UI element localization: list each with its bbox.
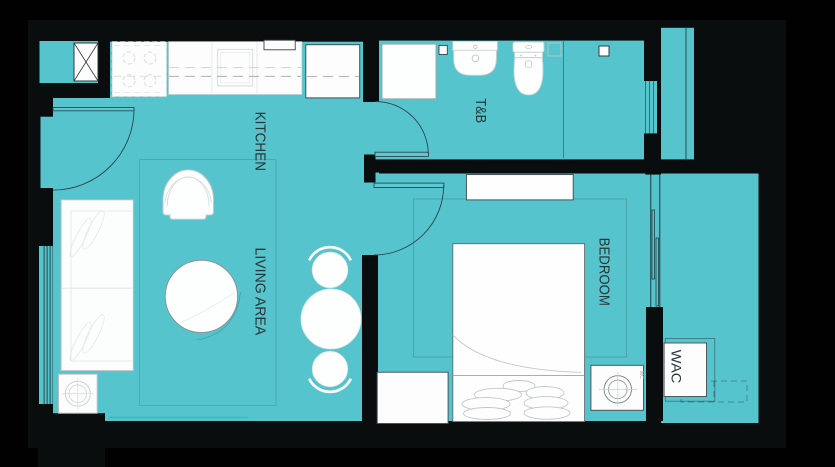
svg-text:BEDROOM: BEDROOM	[595, 238, 611, 306]
svg-text:T&B: T&B	[472, 98, 489, 123]
svg-text:MC: MC	[638, 371, 644, 379]
svg-text:KITCHEN: KITCHEN	[251, 112, 268, 171]
svg-text:WAC: WAC	[668, 350, 684, 384]
svg-text:LIVING AREA: LIVING AREA	[251, 248, 268, 336]
